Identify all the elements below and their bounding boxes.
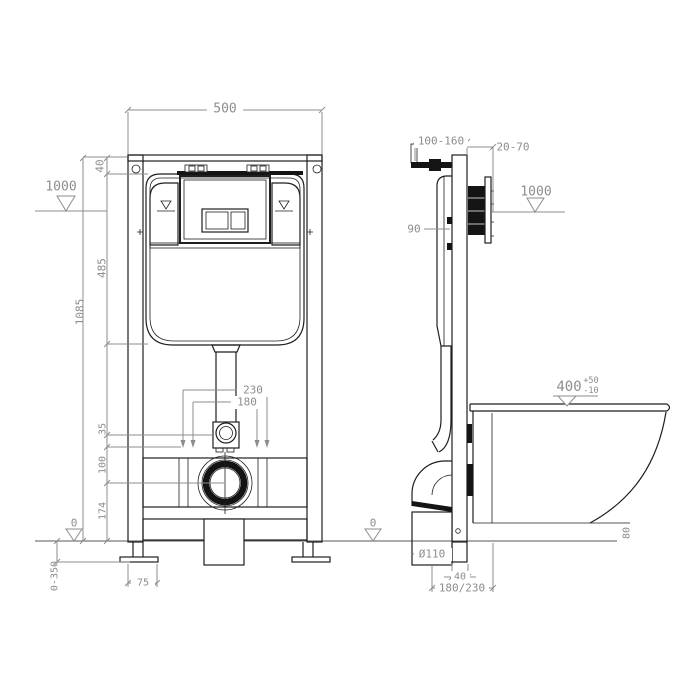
cistern-wing-right [272,183,300,245]
cross-mark-right [307,229,313,235]
post-screw [456,529,461,534]
level-top-front: 1000 [45,180,76,195]
dim-frame-depth: 100-160 [418,135,464,148]
dim-bowl-depth-tol-plus: +50 [583,376,598,386]
mounting-hole-left [132,165,140,173]
frame-top-bar [128,155,322,161]
dim-frame-height: 1085 [74,299,87,326]
water-level-icon [275,201,293,211]
level-top-side: 1000 [520,185,551,200]
dim-foot-range: 0-350 [50,561,61,591]
dim-bowl-clearance: 80 [622,527,633,539]
dim-drain-diameter: Ø110 [419,548,446,561]
flush-unit-block [468,186,485,235]
flush-pipe-bend [432,420,451,452]
level-triangle-icon [365,529,381,541]
installation-drawing: 500 40 485 35 100 174 1085 1000 [0,0,700,700]
dimensions-side: 100-160 20-70 1000 90 400 +50 -10 80 0 Ø… [365,135,633,596]
cross-mark-left [137,229,143,235]
cistern-wing-left [150,183,178,245]
level-triangle-icon [527,198,544,212]
dim-bolt-span-inner: 180 [237,396,257,409]
flush-button-large [206,212,228,229]
cistern-inner-line [150,178,300,341]
dim-drain-height: 174 [98,502,109,520]
frame-left-leg [128,155,143,542]
frame-right-leg [307,155,322,542]
dim-drain-distance: 180/230 [439,582,485,595]
flush-button-small [231,212,245,229]
dim-inlet-gap: 35 [98,423,109,435]
fitting-foot [216,448,223,452]
flush-pipe-collar [212,345,240,352]
dim-plate-offset: 90 [407,223,420,236]
elbow-joint [412,501,452,512]
flush-buttons-outline [202,209,248,232]
flush-plate-side [485,177,491,243]
post-bolt [447,243,452,250]
dim-wall-thickness: 20-70 [496,141,529,154]
dim-top-offset: 40 [94,159,107,172]
bowl-seat-caps [470,404,670,411]
fitting-foot [227,448,234,452]
post-below-floor [452,542,467,562]
level-floor-side: 0 [370,517,377,530]
dim-cistern-height: 485 [96,258,109,278]
dim-inlet-to-drain: 100 [98,456,109,474]
dim-bowl-depth: 400 [556,379,581,395]
bowl-bolt-lower [467,464,473,496]
dim-frame-width: 500 [213,102,236,117]
supply-valve [429,159,441,171]
front-view [120,155,330,565]
cistern-profile [437,176,452,346]
mounting-hole-right [313,165,321,173]
post-bolt [447,217,452,224]
level-triangle-icon [66,529,82,541]
dim-bowl-depth-tol-minus: -10 [583,386,598,396]
inlet-fitting [213,422,239,448]
frame-post [452,155,467,542]
foot-plate-right [292,557,330,562]
level-triangle-icon [57,196,75,211]
bowl-curve [590,412,666,523]
foot-plate-left [120,557,158,562]
water-level-icon [157,201,175,211]
cistern-outline [146,174,304,345]
level-floor-front: 0 [71,517,78,530]
bowl-bolt-upper [467,424,472,443]
side-view [411,144,670,565]
center-drain-block [204,519,244,565]
drain-elbow-outer [412,461,452,506]
drain-elbow-inner [432,475,452,495]
dim-foot-plate: 75 [137,578,149,589]
